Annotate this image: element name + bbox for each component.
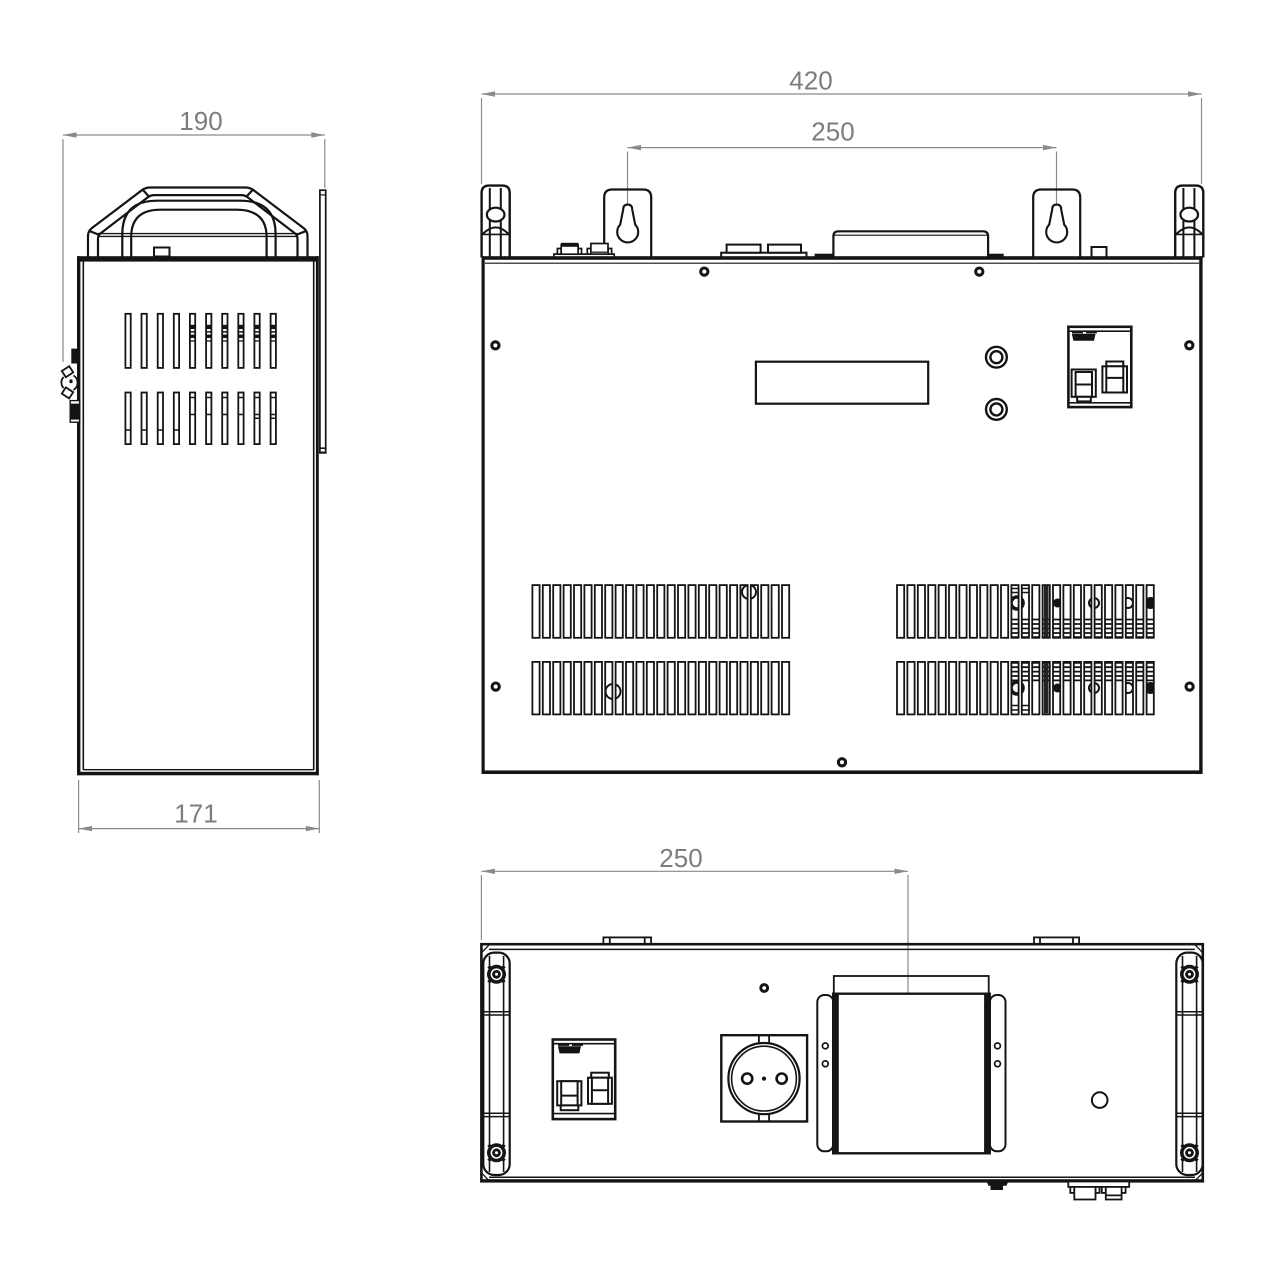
svg-text:171: 171	[174, 799, 217, 829]
svg-text:190: 190	[179, 106, 222, 136]
svg-text:250: 250	[659, 843, 702, 873]
svg-text:250: 250	[811, 117, 854, 147]
svg-text:420: 420	[789, 66, 832, 96]
